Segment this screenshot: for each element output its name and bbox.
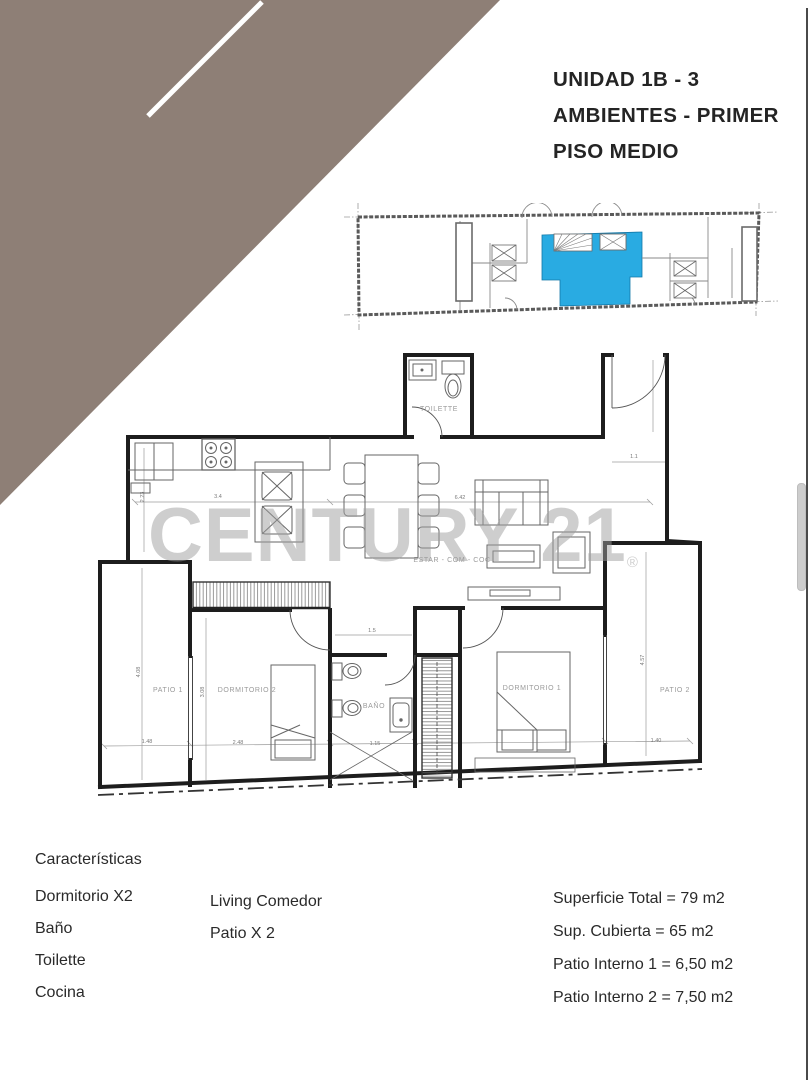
floorplan-sheet: UNIDAD 1B - 3 AMBIENTES - PRIMER PISO ME…: [0, 0, 810, 1080]
area-patio-interno-1: Patio Interno 1 = 6,50 m2: [553, 956, 733, 974]
feature-toilette: Toilette: [35, 952, 86, 970]
dim-text: 1.15: [370, 741, 381, 747]
label-toilette: TOILETTE: [420, 406, 458, 413]
page-title: UNIDAD 1B - 3 AMBIENTES - PRIMER PISO ME…: [553, 62, 793, 170]
feature-cocina: Cocina: [35, 984, 85, 1002]
scrollbar-track[interactable]: [806, 8, 808, 1080]
characteristics-heading: Características: [35, 851, 142, 869]
hatched-band: [193, 582, 330, 608]
feature-living-comedor: Living Comedor: [210, 893, 322, 911]
label-patio1: PATIO 1: [153, 687, 183, 694]
title-line-1: UNIDAD 1B - 3: [553, 62, 793, 98]
main-floor-plan: TOILETTE ESTAR - COM - COC PATIO 1 DORMI…: [90, 340, 790, 820]
dim-text: 2.23: [140, 492, 146, 503]
dim-text: 6.42: [455, 495, 466, 501]
label-dorm2: DORMITORIO 2: [218, 687, 276, 694]
label-bath: BAÑO: [363, 701, 385, 710]
scrollbar-thumb[interactable]: [797, 483, 806, 591]
label-patio2: PATIO 2: [660, 687, 690, 694]
dim-text: 4.57: [640, 655, 646, 666]
walls: [100, 355, 700, 787]
label-dorm1: DORMITORIO 1: [503, 685, 561, 692]
dim-text: 1.1: [630, 454, 638, 460]
label-living: ESTAR - COM - COC: [413, 557, 490, 564]
area-sup-cubierta: Sup. Cubierta = 65 m2: [553, 923, 714, 941]
area-patio-interno-2: Patio Interno 2 = 7,50 m2: [553, 989, 733, 1007]
area-superficie-total: Superficie Total = 79 m2: [553, 890, 725, 908]
dim-text: 1.48: [142, 739, 153, 745]
title-line-2: AMBIENTES - PRIMER: [553, 98, 793, 134]
dim-text: 3.4: [214, 494, 222, 500]
furniture: [128, 360, 590, 780]
feature-bano: Baño: [35, 920, 72, 938]
staircase: [422, 658, 452, 778]
door-arcs: [290, 355, 665, 685]
feature-patios: Patio X 2: [210, 925, 275, 943]
title-line-3: PISO MEDIO: [553, 134, 793, 170]
feature-dormitorios: Dormitorio X2: [35, 888, 133, 906]
building-key-plan: [340, 203, 780, 338]
dim-text: 2.48: [233, 740, 244, 746]
dim-text: 1.5: [368, 628, 376, 634]
dim-text: 1.40: [651, 738, 662, 744]
mini-stair-and-shaft: [554, 234, 626, 251]
dim-text: 4.08: [136, 667, 142, 678]
dim-text: 3.08: [200, 687, 206, 698]
